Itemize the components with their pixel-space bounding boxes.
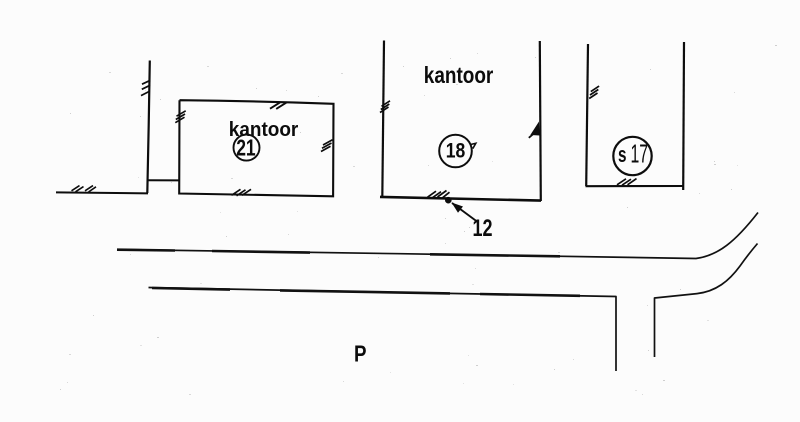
- svg-text:kantoor: kantoor: [424, 62, 494, 88]
- svg-text:P: P: [354, 340, 367, 366]
- svg-text:12: 12: [473, 215, 493, 242]
- svg-text:21: 21: [236, 135, 256, 161]
- svg-text:17: 17: [631, 139, 649, 169]
- svg-text:s: s: [618, 142, 627, 167]
- svg-text:18: 18: [446, 140, 466, 163]
